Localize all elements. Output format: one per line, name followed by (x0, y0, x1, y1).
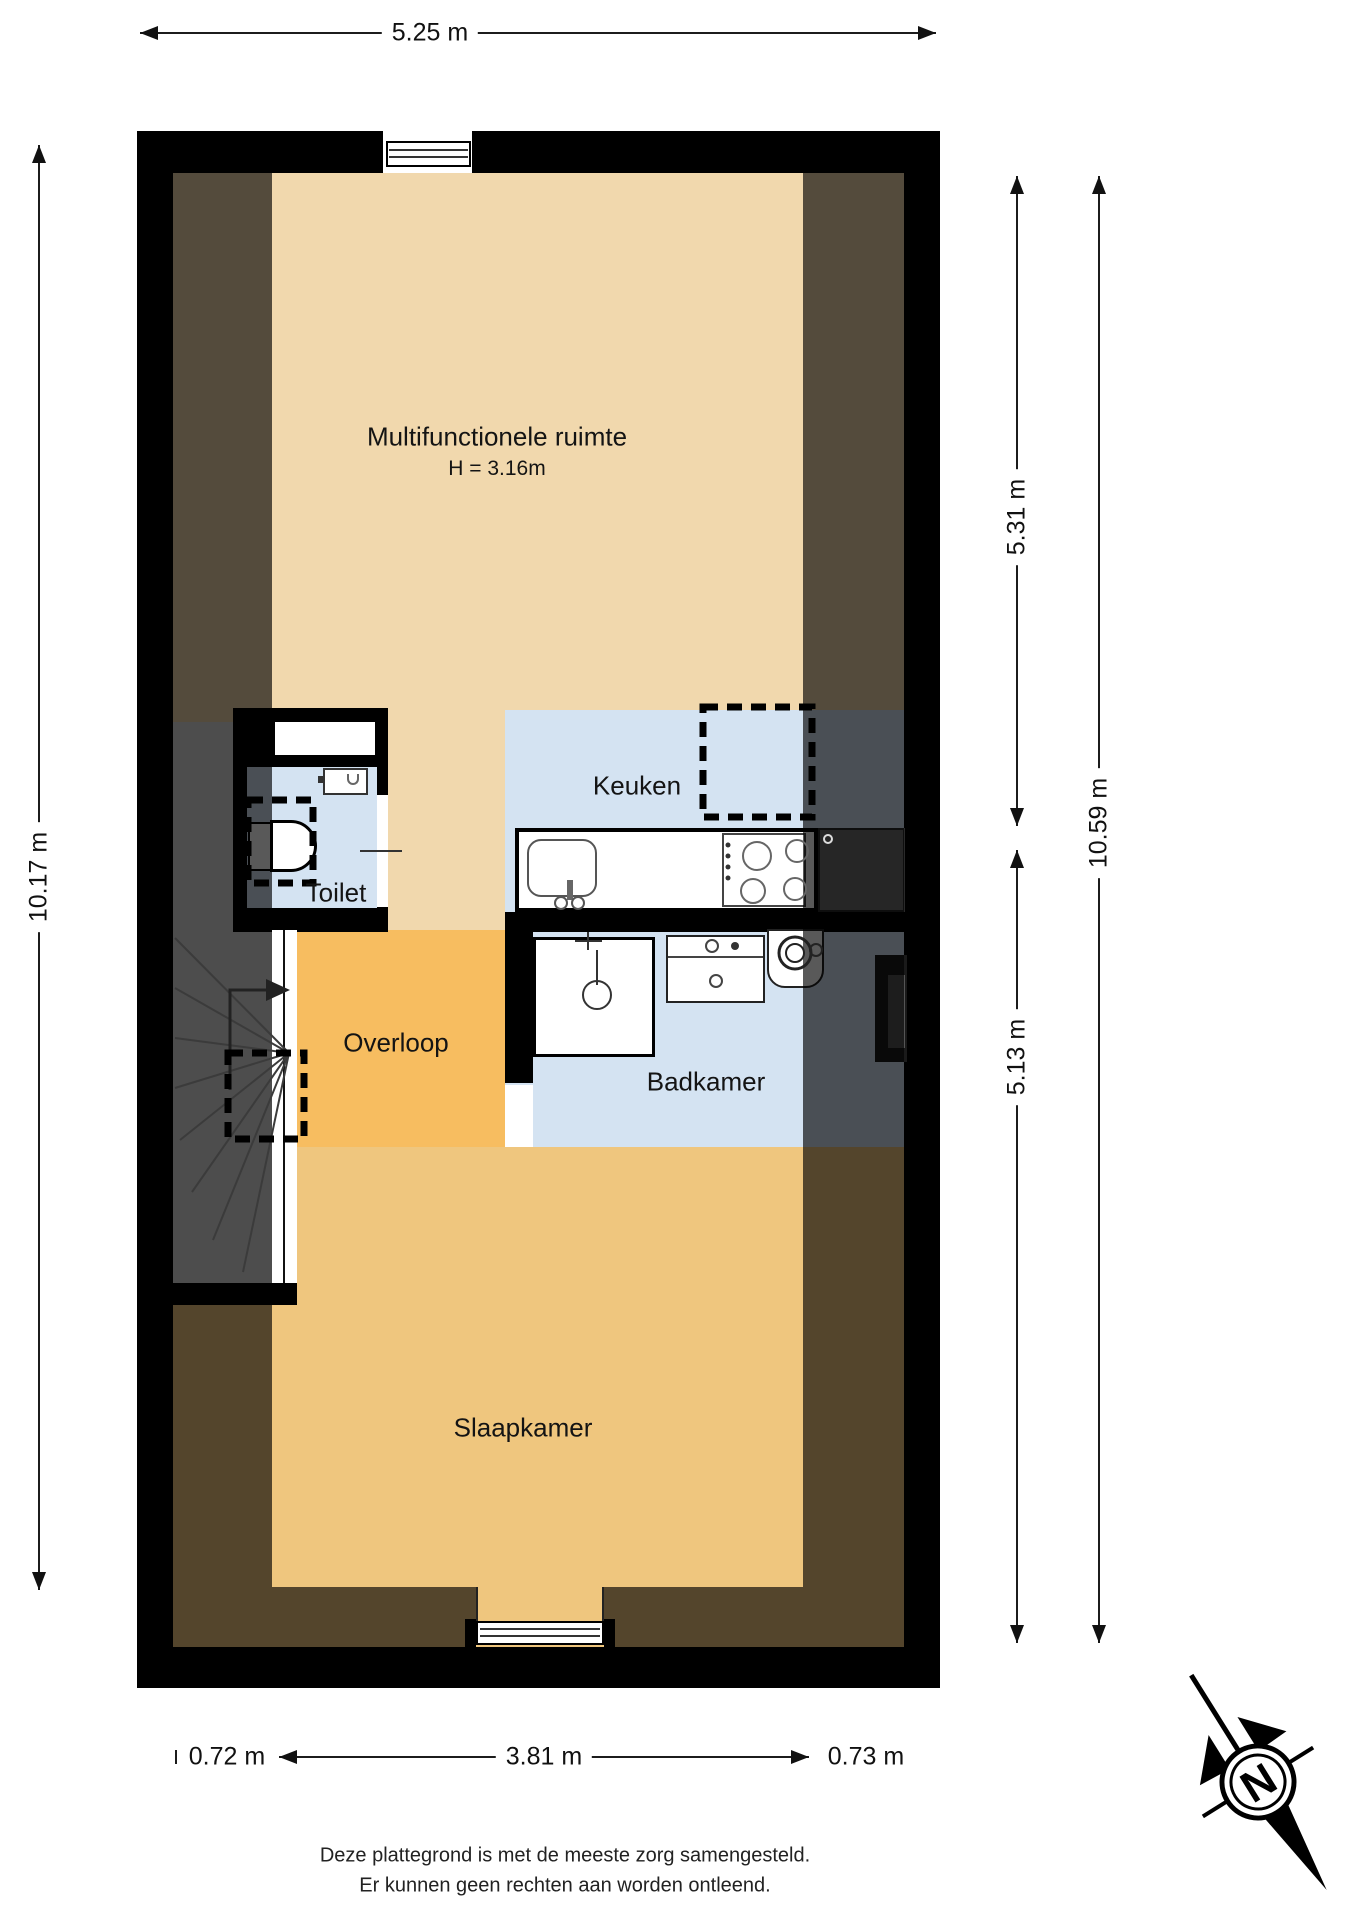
dimension-right-total-label: 10.59 m (1083, 768, 1116, 878)
shower-details (575, 932, 611, 1009)
hob-burners (726, 835, 833, 903)
compass-icon: N (1143, 1648, 1358, 1918)
plan-strokes (0, 0, 1358, 1920)
washbasin-details (668, 940, 763, 987)
dimension-bottom-right-label: 0.73 m (818, 1741, 914, 1774)
dimension-right-lower-label: 5.13 m (1001, 1009, 1034, 1105)
label-toilet: Toilet (306, 878, 367, 909)
disclaimer-line-2: Er kunnen geen rechten aan worden ontlee… (359, 1875, 770, 1898)
dimension-top-label: 5.25 m (382, 17, 478, 50)
dimension-bottom-center-label: 3.81 m (496, 1741, 592, 1774)
label-keuken: Keuken (593, 771, 681, 802)
label-slaapkamer: Slaapkamer (454, 1413, 593, 1444)
label-multifunctionele: Multifunctionele ruimte (367, 422, 627, 453)
label-overloop: Overloop (343, 1028, 449, 1059)
disclaimer-line-1: Deze plattegrond is met de meeste zorg s… (320, 1845, 810, 1868)
dimension-left-label: 10.17 m (23, 822, 56, 932)
kitchen-sink-faucet (555, 880, 584, 909)
floorplan-canvas: Multifunctionele ruimte H = 3.16m Keuken… (0, 0, 1358, 1920)
label-badkamer: Badkamer (647, 1067, 766, 1098)
dimension-bottom-left-label: 0.72 m (179, 1741, 275, 1774)
dimension-right-upper-label: 5.31 m (1001, 469, 1034, 565)
label-height-note: H = 3.16m (448, 457, 545, 481)
boiler-details (779, 937, 822, 969)
